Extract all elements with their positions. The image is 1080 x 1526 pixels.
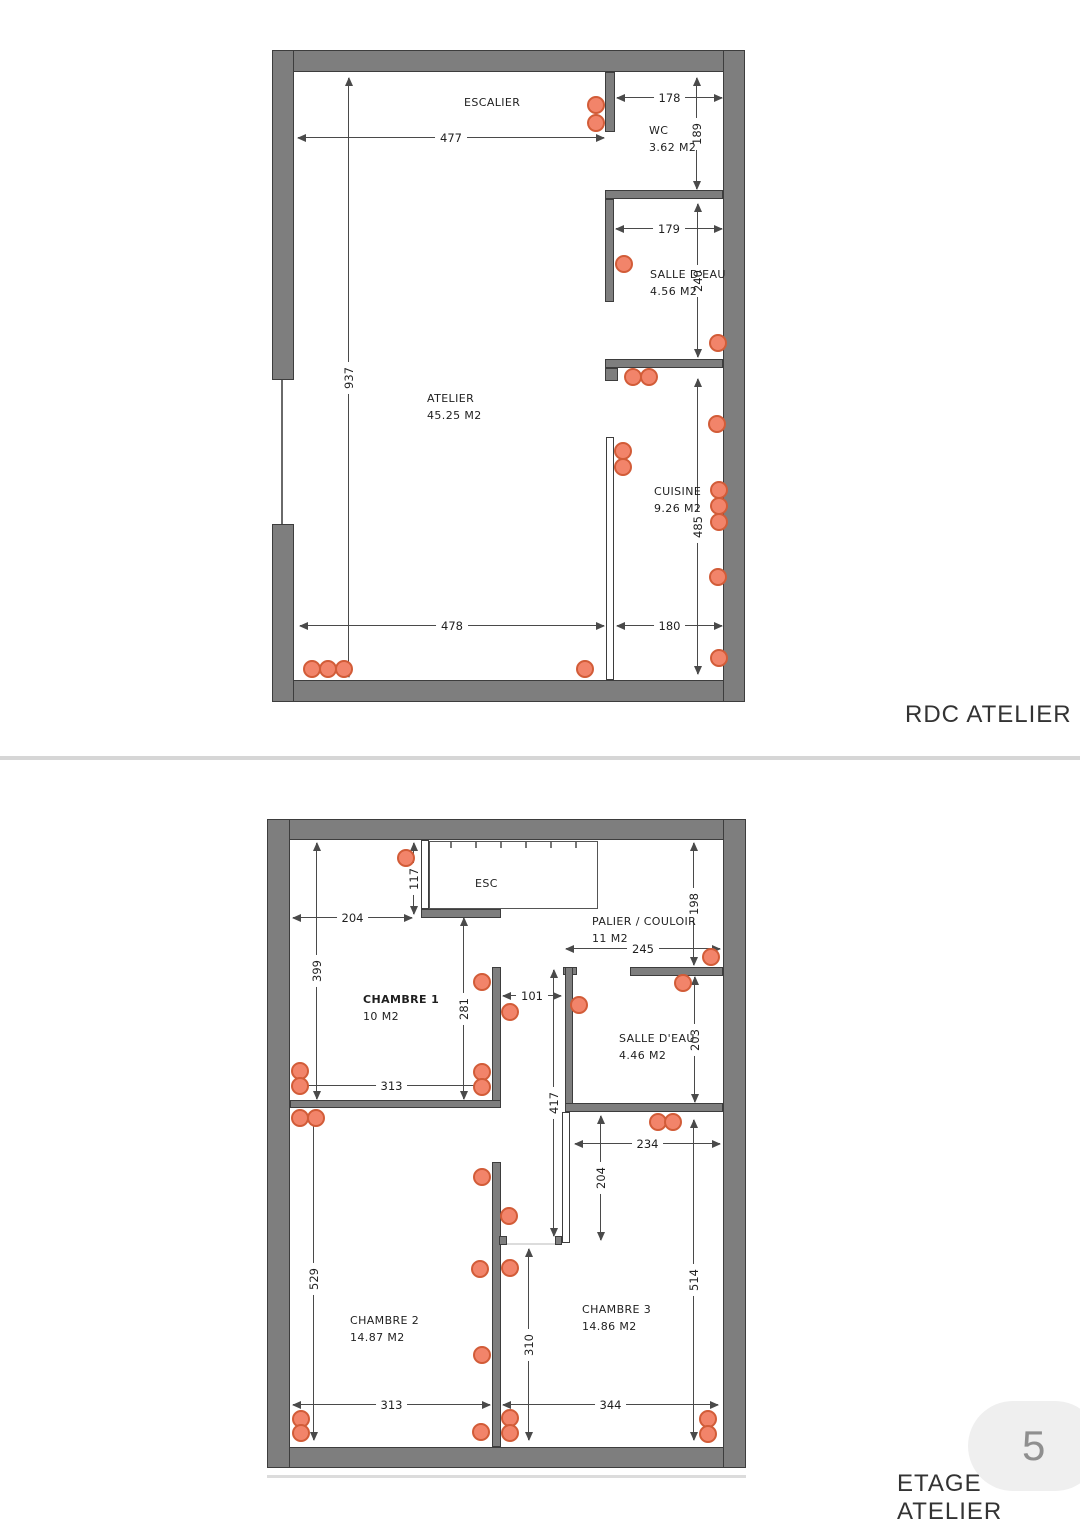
socket-dot: [500, 1207, 518, 1225]
socket-dot: [709, 568, 727, 586]
socket-dot: [708, 415, 726, 433]
room-label-salle-d-eau: SALLE D'EAU4.46 M2: [619, 1030, 695, 1064]
dimension-label: 313: [376, 1398, 408, 1412]
room-label-line: ATELIER: [427, 390, 482, 407]
room-label-palier-couloir: PALIER / COULOIR11 M2: [592, 913, 696, 947]
dimension-179: 179: [616, 228, 722, 229]
stair-outline: [429, 841, 598, 909]
socket-dot: [501, 1259, 519, 1277]
dimension-180: 180: [617, 625, 722, 626]
room-label-line: SALLE D'EAU: [650, 266, 726, 283]
stair-tread: [575, 842, 577, 848]
dim-arrow-down: [694, 349, 702, 358]
dimension-label: 478: [436, 619, 468, 633]
stair-tread: [500, 842, 502, 848]
page-number: 5: [1022, 1422, 1045, 1470]
room-label-line: 10 M2: [363, 1008, 439, 1025]
socket-dot: [587, 96, 605, 114]
room-label-line: CHAMBRE 1: [363, 991, 439, 1008]
dim-arrow-down: [597, 1232, 605, 1241]
dimension-937: 937: [348, 78, 349, 677]
dim-arrow-right: [714, 225, 723, 233]
socket-dot: [615, 255, 633, 273]
room-label-escalier: ESCALIER: [464, 94, 520, 111]
dim-arrow-right: [596, 134, 605, 142]
outer-wall-top: [267, 819, 746, 840]
socket-dot: [702, 948, 720, 966]
socket-dot: [640, 368, 658, 386]
dimension-204: 204: [293, 917, 412, 918]
wall-salle-deau-left: [605, 199, 614, 302]
wall-cuisine-partition: [606, 437, 614, 680]
dimension-label: 417: [547, 1087, 561, 1119]
socket-dot: [471, 1260, 489, 1278]
dimension-label: 180: [654, 619, 686, 633]
stair-tread: [525, 842, 527, 848]
stair-tread: [450, 842, 452, 848]
socket-dot: [473, 973, 491, 991]
dim-arrow-up: [550, 969, 558, 978]
socket-dot: [473, 1078, 491, 1096]
dim-arrow-down: [690, 957, 698, 966]
dimension-label: 101: [516, 989, 548, 1003]
socket-dot: [472, 1423, 490, 1441]
room-label-salle-d-eau: SALLE D'EAU4.56 M2: [650, 266, 726, 300]
room-label-line: CHAMBRE 3: [582, 1301, 651, 1318]
room-label-line: PALIER / COULOIR: [592, 913, 696, 930]
dim-arrow-left: [574, 1140, 583, 1148]
dimension-label: 313: [376, 1079, 408, 1093]
dimension-399: 399: [316, 843, 317, 1099]
wall-wc-bottom: [605, 190, 723, 199]
wall-chambre2-right: [492, 1162, 501, 1447]
room-label-line: 4.46 M2: [619, 1047, 695, 1064]
dimension-label: 204: [337, 911, 369, 925]
dim-arrow-left: [616, 622, 625, 630]
dim-arrow-down: [691, 1094, 699, 1103]
dim-arrow-up: [694, 378, 702, 387]
dimension-204: 204: [600, 1116, 601, 1240]
dimension-label: 117: [407, 863, 421, 895]
outer-wall-bottom: [267, 1447, 746, 1468]
room-label-line: 14.86 M2: [582, 1318, 651, 1335]
dimension-label: 179: [653, 222, 685, 236]
wall-stub-right: [555, 1236, 562, 1245]
door-threshold: [500, 1243, 556, 1245]
dim-arrow-left: [299, 622, 308, 630]
stair-tread: [475, 842, 477, 848]
wall-stair-left: [421, 840, 429, 909]
outer-wall-left: [267, 819, 290, 1468]
dim-arrow-up: [313, 842, 321, 851]
wall-salle-deau-top: [630, 967, 723, 976]
socket-dot: [699, 1425, 717, 1443]
dimension-477: 477: [298, 137, 604, 138]
room-label-line: WC: [649, 122, 696, 139]
dimension-485: 485: [697, 379, 698, 674]
dimension-label: 310: [522, 1329, 536, 1361]
room-label-chambre-2: CHAMBRE 214.87 M2: [350, 1312, 419, 1346]
socket-dot: [709, 334, 727, 352]
dim-arrow-left: [297, 134, 306, 142]
socket-dot: [292, 1424, 310, 1442]
dimension-label: 234: [632, 1137, 664, 1151]
dim-arrow-down: [313, 1091, 321, 1100]
dimension-label: 204: [594, 1162, 608, 1194]
socket-dot: [576, 660, 594, 678]
socket-dot: [291, 1077, 309, 1095]
dim-arrow-up: [693, 77, 701, 86]
dimension-313: 313: [293, 1085, 490, 1086]
outer-wall-top: [272, 50, 745, 72]
room-label-line: 14.87 M2: [350, 1329, 419, 1346]
dim-arrow-right: [596, 622, 605, 630]
room-label-wc: WC3.62 M2: [649, 122, 696, 156]
room-label-line: 4.56 M2: [650, 283, 726, 300]
room-label-line: 9.26 M2: [654, 500, 701, 517]
socket-dot: [664, 1113, 682, 1131]
socket-dot: [473, 1346, 491, 1364]
wall-chambre1-bottom: [290, 1100, 501, 1108]
dimension-478: 478: [300, 625, 604, 626]
dim-arrow-left: [502, 1401, 511, 1409]
dim-arrow-down: [690, 1432, 698, 1441]
room-label-line: CUISINE: [654, 483, 701, 500]
socket-dot: [710, 513, 728, 531]
dim-arrow-right: [714, 622, 723, 630]
socket-dot: [335, 660, 353, 678]
wall-stub: [605, 368, 618, 381]
dimension-281: 281: [463, 918, 464, 1099]
room-label-line: SALLE D'EAU: [619, 1030, 695, 1047]
room-label-line: 45.25 M2: [427, 407, 482, 424]
dim-arrow-right: [553, 992, 562, 1000]
wall-corridor-right: [562, 1112, 570, 1243]
dimension-310: 310: [528, 1249, 529, 1440]
wall-salle-deau-bottom: [565, 1103, 723, 1112]
dim-arrow-left: [615, 225, 624, 233]
dimension-label: 477: [435, 131, 467, 145]
dimension-529: 529: [313, 1117, 314, 1440]
dim-arrow-down: [310, 1432, 318, 1441]
socket-dot: [710, 649, 728, 667]
page-number-badge[interactable]: 5: [968, 1401, 1080, 1491]
socket-dot: [570, 996, 588, 1014]
dim-arrow-right: [710, 1401, 719, 1409]
room-label-chambre-3: CHAMBRE 314.86 M2: [582, 1301, 651, 1335]
dimension-label: 529: [307, 1263, 321, 1295]
dim-arrow-up: [525, 1248, 533, 1257]
dim-arrow-right: [714, 94, 723, 102]
dim-arrow-down: [460, 1091, 468, 1100]
dimension-344: 344: [503, 1404, 718, 1405]
dim-arrow-up: [460, 917, 468, 926]
socket-dot: [587, 114, 605, 132]
dimension-label: 281: [457, 993, 471, 1025]
dimension-234: 234: [575, 1143, 720, 1144]
room-label-line: ESC: [475, 875, 498, 892]
dimension-178: 178: [617, 97, 722, 98]
plan-title-rdc: RDC ATELIER: [905, 701, 1072, 729]
dimension-313: 313: [293, 1404, 490, 1405]
room-label-esc: ESC: [475, 875, 498, 892]
room-label-line: 11 M2: [592, 930, 696, 947]
dimension-label: 514: [687, 1264, 701, 1296]
dim-arrow-left: [292, 1401, 301, 1409]
window-line: [281, 380, 283, 524]
socket-dot: [674, 974, 692, 992]
room-label-line: 3.62 M2: [649, 139, 696, 156]
socket-dot: [501, 1424, 519, 1442]
plan-shadow-line: [267, 1475, 746, 1478]
outer-wall-left-upper: [272, 50, 294, 380]
dim-arrow-down: [525, 1432, 533, 1441]
dim-arrow-up: [690, 842, 698, 851]
dimension-label: 178: [654, 91, 686, 105]
wall-salle-deau-left: [565, 967, 573, 1112]
room-label-cuisine: CUISINE9.26 M2: [654, 483, 701, 517]
dim-arrow-up: [345, 77, 353, 86]
room-label-atelier: ATELIER45.25 M2: [427, 390, 482, 424]
outer-wall-left-lower: [272, 524, 294, 702]
wall-wc-left: [605, 72, 615, 132]
room-label-line: CHAMBRE 2: [350, 1312, 419, 1329]
dim-arrow-down: [693, 181, 701, 190]
dim-arrow-left: [565, 945, 574, 953]
dimension-245: 245: [566, 948, 720, 949]
stair-tread: [550, 842, 552, 848]
socket-dot: [614, 458, 632, 476]
room-label-chambre-1: CHAMBRE 110 M2: [363, 991, 439, 1025]
dim-arrow-down: [550, 1228, 558, 1237]
dim-arrow-right: [482, 1401, 491, 1409]
outer-wall-bottom: [272, 680, 745, 702]
dimension-514: 514: [693, 1120, 694, 1440]
wall-chambre1-right: [492, 967, 501, 1108]
dim-arrow-down: [694, 666, 702, 675]
dim-arrow-left: [616, 94, 625, 102]
dim-arrow-left: [502, 992, 511, 1000]
dimension-label: 937: [342, 362, 356, 394]
room-label-line: ESCALIER: [464, 94, 520, 111]
dimension-label: 399: [310, 955, 324, 987]
outer-wall-right: [723, 50, 745, 702]
socket-dot: [307, 1109, 325, 1127]
wall-salle-deau-bottom: [605, 359, 723, 368]
dim-arrow-up: [690, 1119, 698, 1128]
dim-arrow-up: [597, 1115, 605, 1124]
dimension-label: 344: [595, 1398, 627, 1412]
dimension-417: 417: [553, 970, 554, 1236]
floor-plan-etage: 1172043992811012451982034172342045295143…: [0, 0, 1080, 1526]
socket-dot: [473, 1168, 491, 1186]
wall-stub-left: [499, 1236, 507, 1245]
outer-wall-right: [723, 819, 746, 1468]
socket-dot: [501, 1003, 519, 1021]
dim-arrow-right: [404, 914, 413, 922]
dim-arrow-up: [694, 203, 702, 212]
dim-arrow-left: [292, 914, 301, 922]
socket-dot: [397, 849, 415, 867]
dim-arrow-right: [712, 1140, 721, 1148]
section-divider: [0, 756, 1080, 760]
